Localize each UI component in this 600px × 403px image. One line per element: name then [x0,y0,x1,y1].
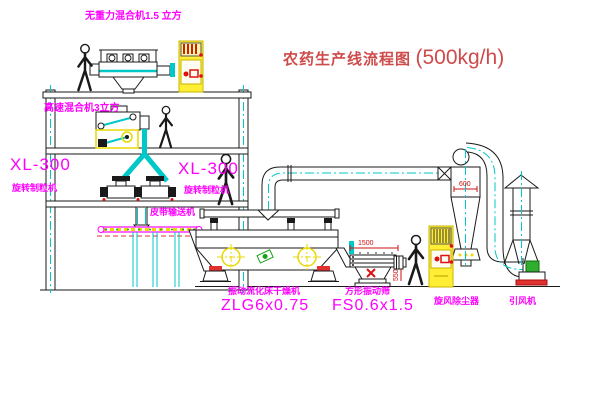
belt-conveyor [97,227,207,288]
dimension-sieve-height: 550 [393,269,400,281]
label-no-gravity-mixer: 无重力混合机1.5 立方 [85,12,182,22]
exhaust-stack [504,171,539,265]
title-capacity: (500kg/h) [415,46,504,69]
label-belt-conveyor: 皮带输送机 [150,208,195,217]
worker-figure-floor2 [160,106,172,147]
label-sieve-name: 方形振动筛 [345,287,390,296]
process-flow-diagram: 农药生产线流程图 (500kg/h) 无重力混合机1.5 立方 高速混合机3立方… [0,0,600,403]
label-dryer-model: ZLG6x0.75 [221,298,309,314]
title-text: 农药生产线流程图 [283,51,411,68]
label-granulator-right-name: 旋转制粒机 [184,186,229,195]
control-cabinet-right [429,226,453,287]
label-high-speed-mixer: 高速混合机3立方 [44,104,120,114]
label-sieve-model: FS0.6x1.5 [332,298,414,314]
label-granulator-right-model: XL-300 [178,160,239,177]
label-cyclone-name: 旋风除尘器 [434,297,479,306]
label-fan-name: 引风机 [509,297,536,306]
diagram-title: 农药生产线流程图 (500kg/h) [283,46,504,70]
label-dryer-name: 振动流化床干燥机 [228,287,300,296]
dimension-sieve-length: 1500 [358,240,374,247]
label-granulator-left-name: 旋转制粒机 [12,184,57,193]
fluid-bed-dryer [189,209,355,282]
granulator-right [134,176,176,201]
worker-figure-ground [409,236,423,285]
control-cabinet-top [179,41,203,92]
label-granulator-left-model: XL-300 [10,156,71,173]
no-gravity-mixer [90,50,175,93]
dimension-cyclone-diameter: 600 [459,181,471,188]
